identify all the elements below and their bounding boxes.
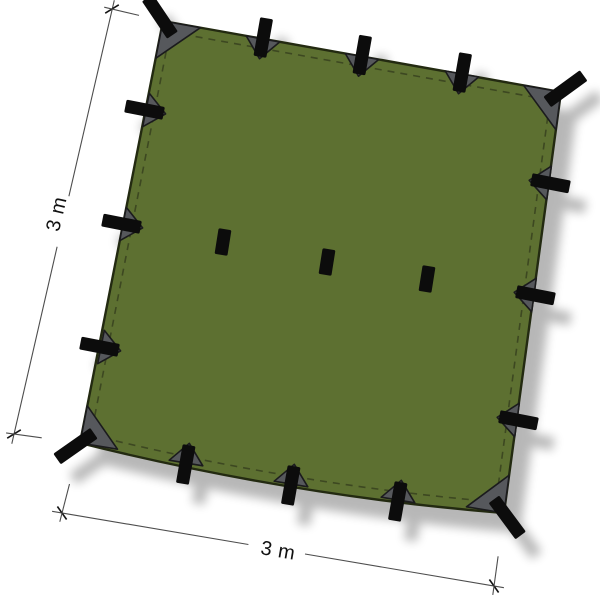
height-dimension-line-lower: [12, 247, 57, 444]
width-dimension-line-right: [305, 554, 504, 588]
width-dimension-label: 3 m: [259, 537, 297, 565]
width-dimension-line-left: [52, 511, 248, 544]
height-dimension-label: 3 m: [42, 195, 71, 234]
tarp-dimension-diagram: 3 m 3 m: [0, 0, 600, 600]
diagram-canvas: 3 m 3 m: [0, 0, 600, 600]
height-dimension-line-upper: [69, 0, 114, 196]
